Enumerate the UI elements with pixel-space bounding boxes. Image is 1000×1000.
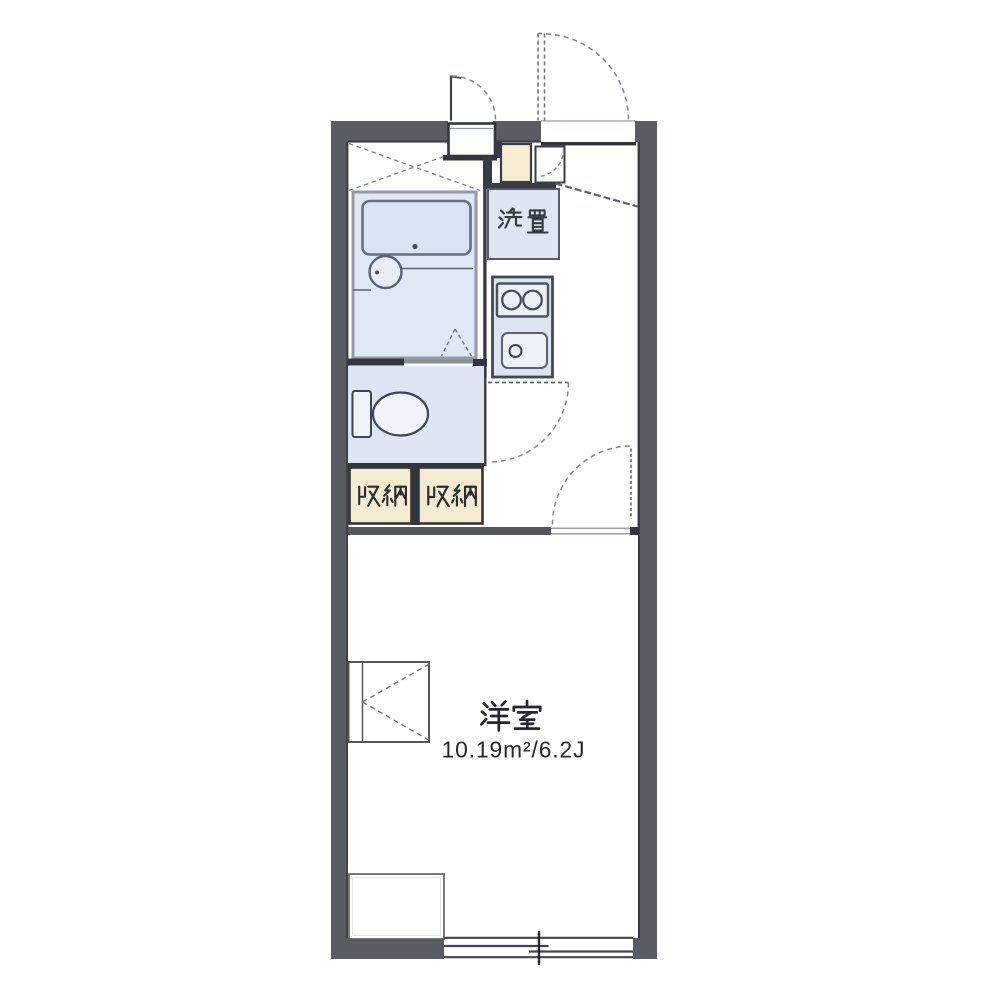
svg-text:10.19m²/6.2J: 10.19m²/6.2J	[442, 737, 586, 763]
